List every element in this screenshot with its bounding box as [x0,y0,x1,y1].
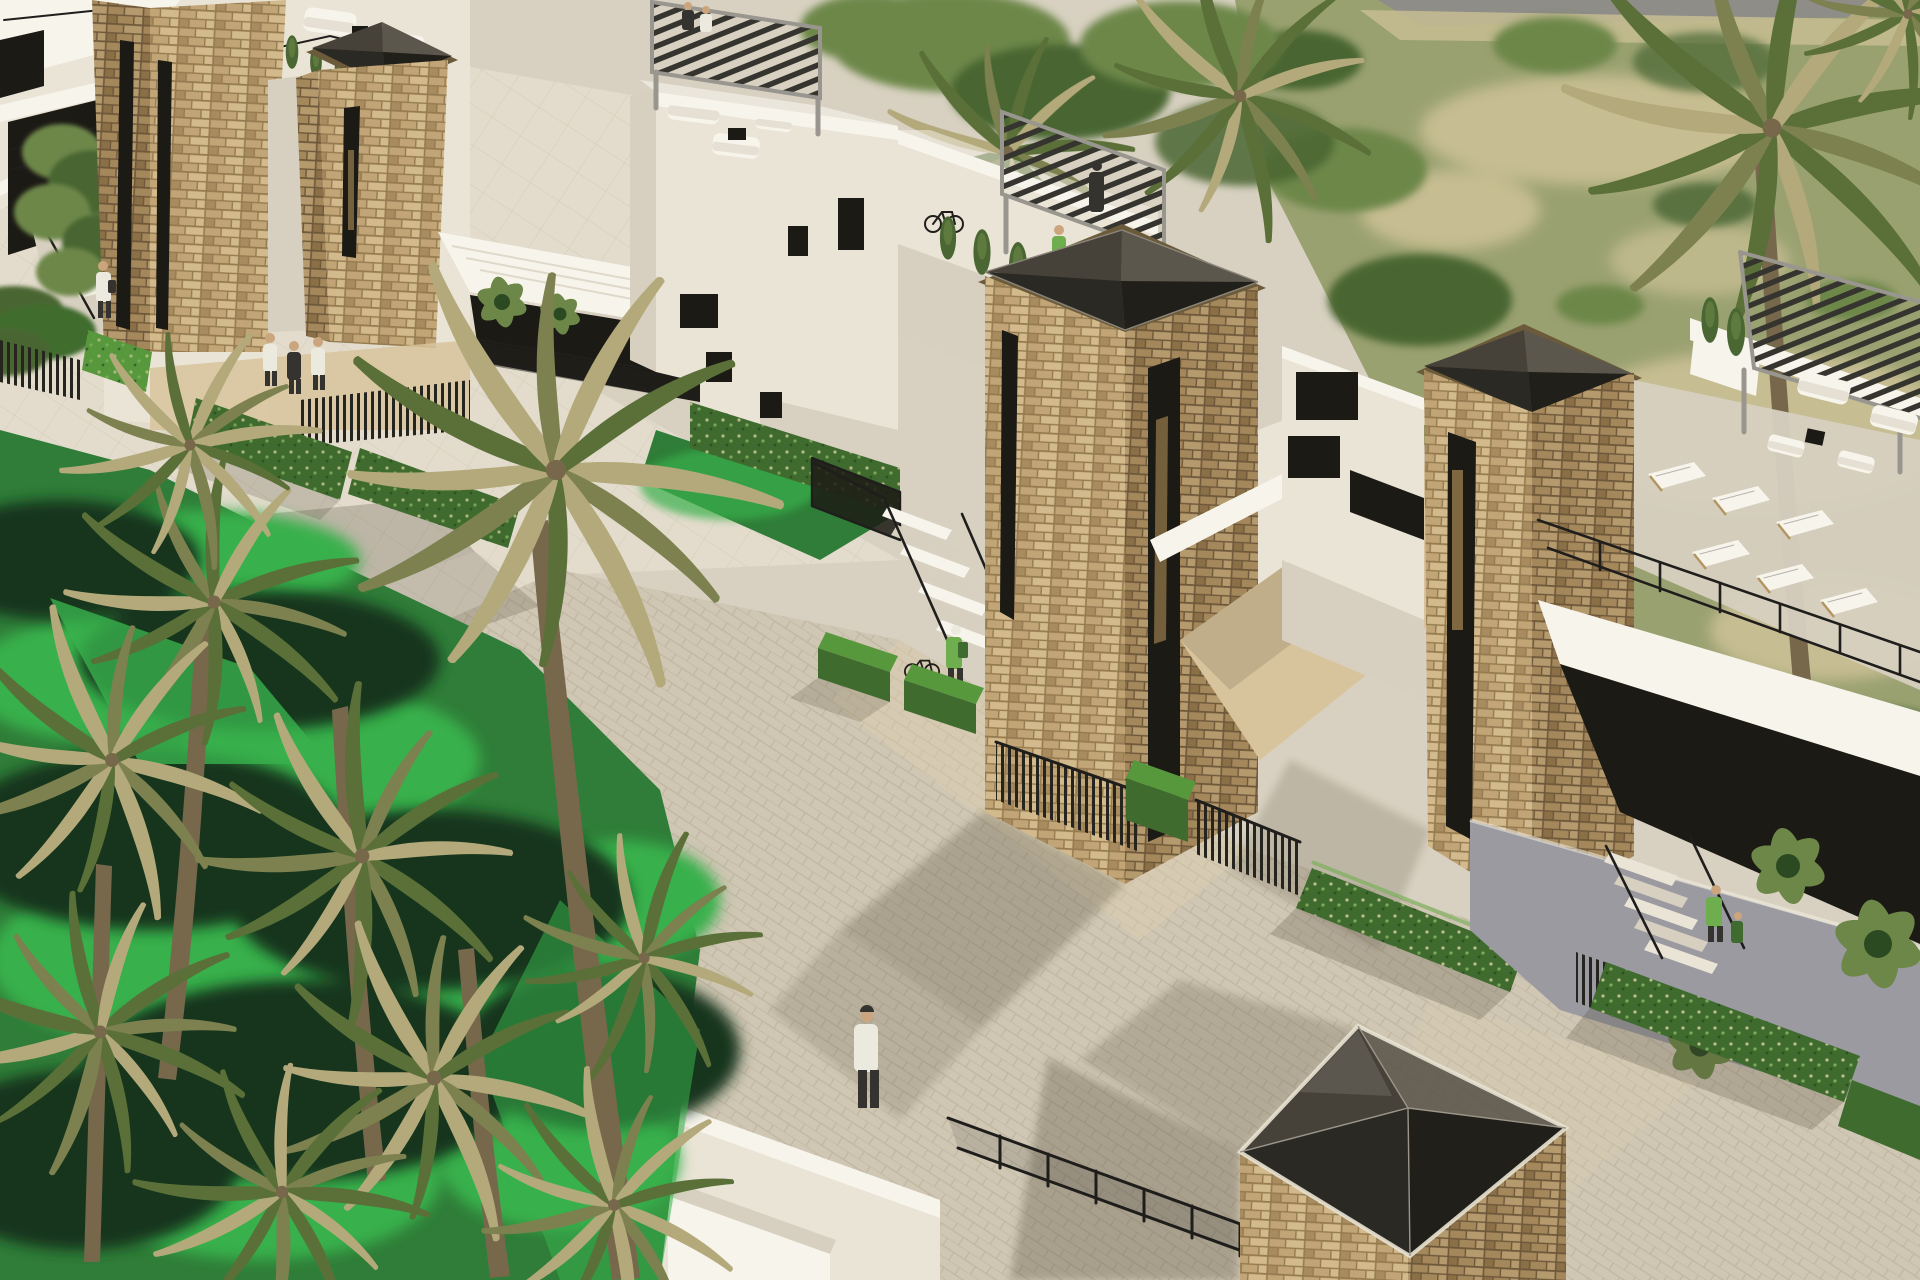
stone-tower-b [296,22,458,348]
render-canvas: Sunny aerial 3D architectural rendering … [0,0,1920,1280]
right-stone-tower [1416,324,1642,910]
villa-window-right-2 [1288,436,1340,478]
right-villa [1282,346,1424,700]
stone-tower-a [92,0,286,368]
architectural-render: Sunny aerial 3D architectural rendering … [0,0,1920,1280]
villa-window-right [1296,372,1358,420]
